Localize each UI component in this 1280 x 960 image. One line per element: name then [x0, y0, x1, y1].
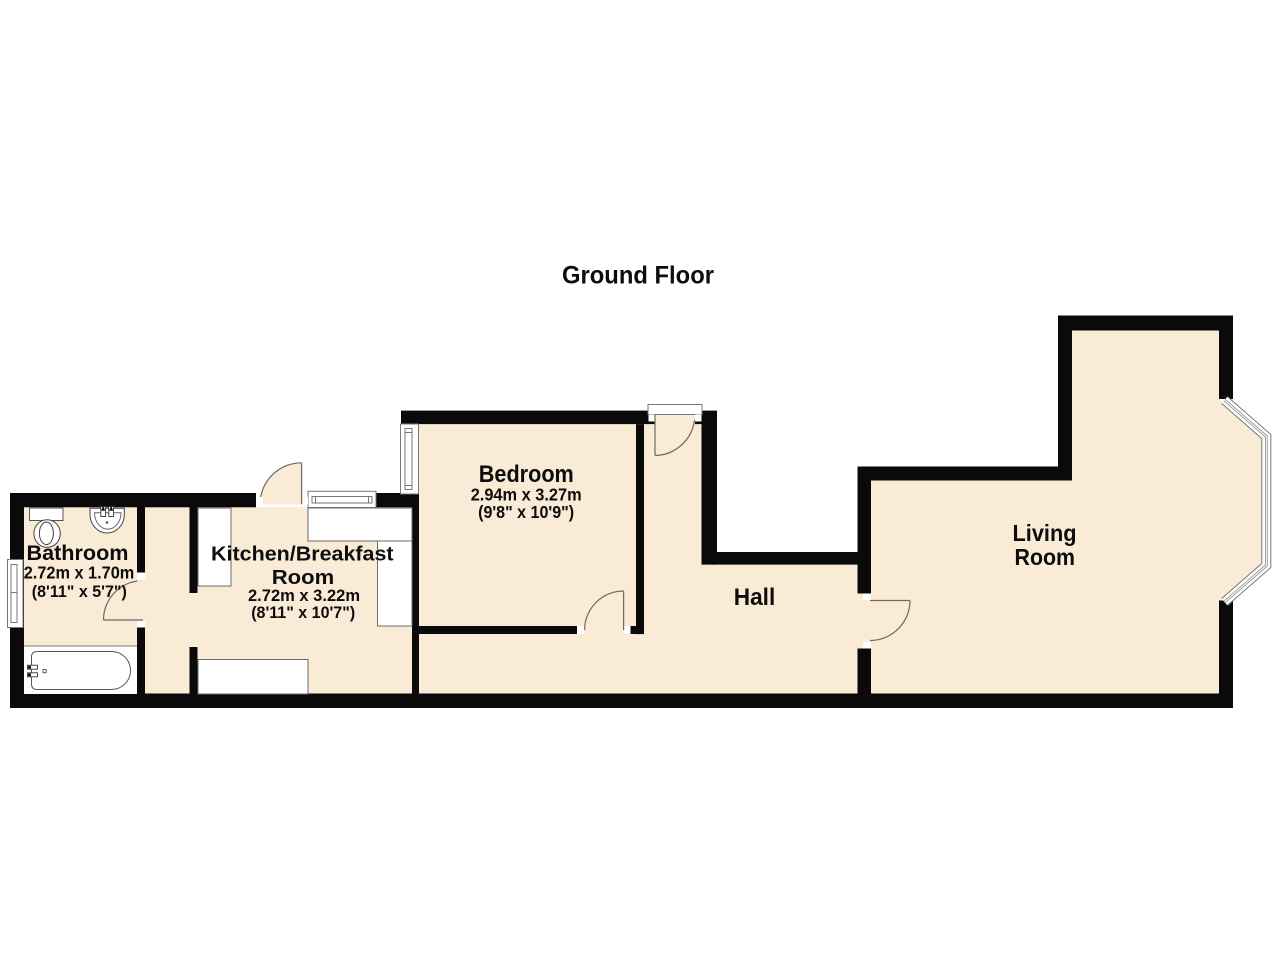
- svg-text:2.72m x 1.70m: 2.72m x 1.70m: [24, 563, 135, 583]
- svg-text:Hall: Hall: [734, 585, 776, 611]
- svg-text:(8'11" x 5'7"): (8'11" x 5'7"): [32, 582, 127, 601]
- svg-text:Living: Living: [1013, 520, 1077, 546]
- svg-text:Ground Floor: Ground Floor: [562, 263, 714, 290]
- svg-text:(9'8" x 10'9"): (9'8" x 10'9"): [478, 502, 574, 522]
- svg-text:(8'11" x 10'7"): (8'11" x 10'7"): [251, 604, 355, 622]
- svg-text:Kitchen/Breakfast: Kitchen/Breakfast: [211, 543, 394, 566]
- svg-text:Bathroom: Bathroom: [27, 542, 129, 565]
- svg-text:2.72m x 3.22m: 2.72m x 3.22m: [248, 586, 360, 605]
- svg-text:Room: Room: [1015, 544, 1076, 570]
